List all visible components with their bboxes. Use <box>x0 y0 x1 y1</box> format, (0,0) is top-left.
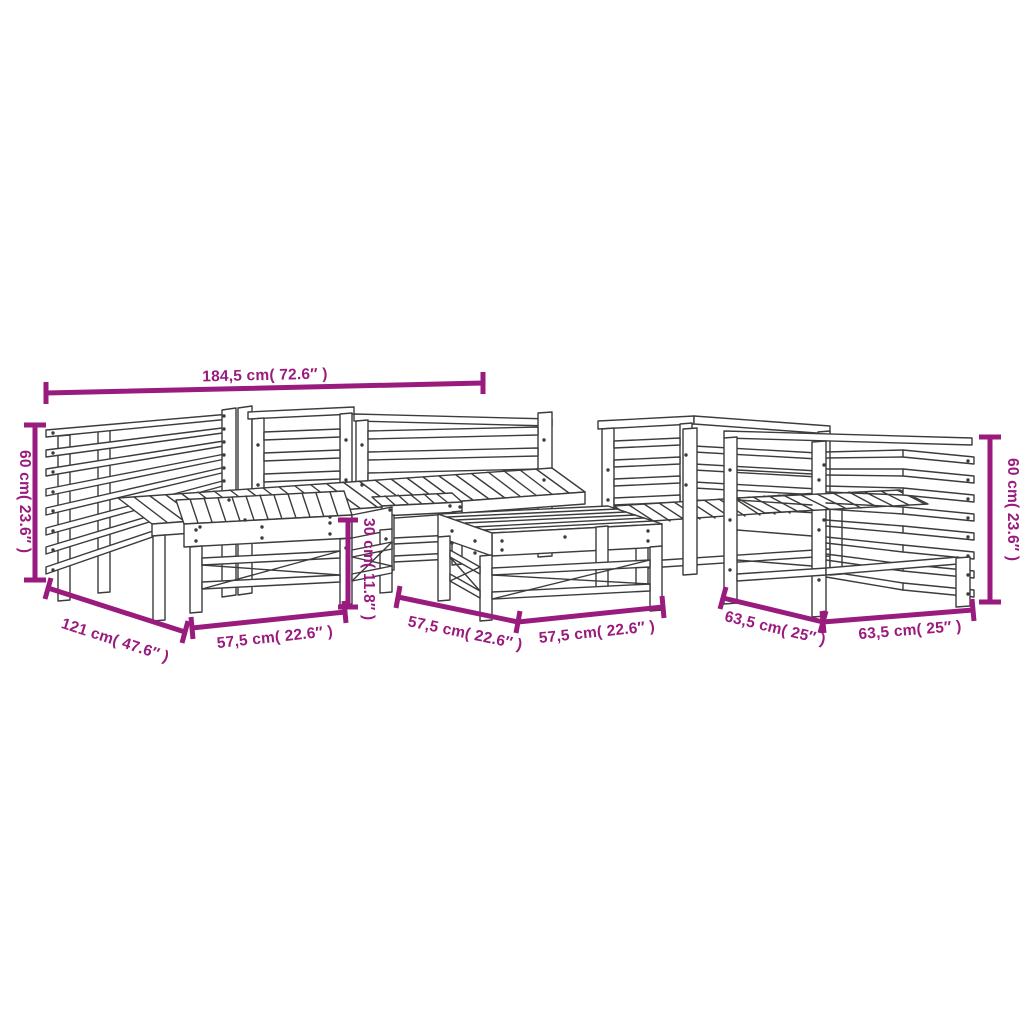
dim-label-stool-height: 30 cm( 11.8″ ) <box>359 518 377 620</box>
dim-label-height-left: 60 cm( 23.6″ ) <box>15 450 33 553</box>
dimension-diagram: 184,5 cm( 72.6″ ) 60 cm( 23.6″ ) 60 cm( … <box>0 0 1024 1024</box>
dim-label-total-width: 184,5 cm( 72.6″ ) <box>190 365 340 386</box>
dim-line-table-width <box>518 596 664 622</box>
diagram-canvas <box>0 0 1024 1024</box>
garden-table-center <box>438 506 662 621</box>
furniture-art <box>46 406 974 621</box>
dim-label-height-right: 60 cm( 23.6″ ) <box>1003 458 1021 561</box>
dim-line-height-right <box>979 437 1001 602</box>
